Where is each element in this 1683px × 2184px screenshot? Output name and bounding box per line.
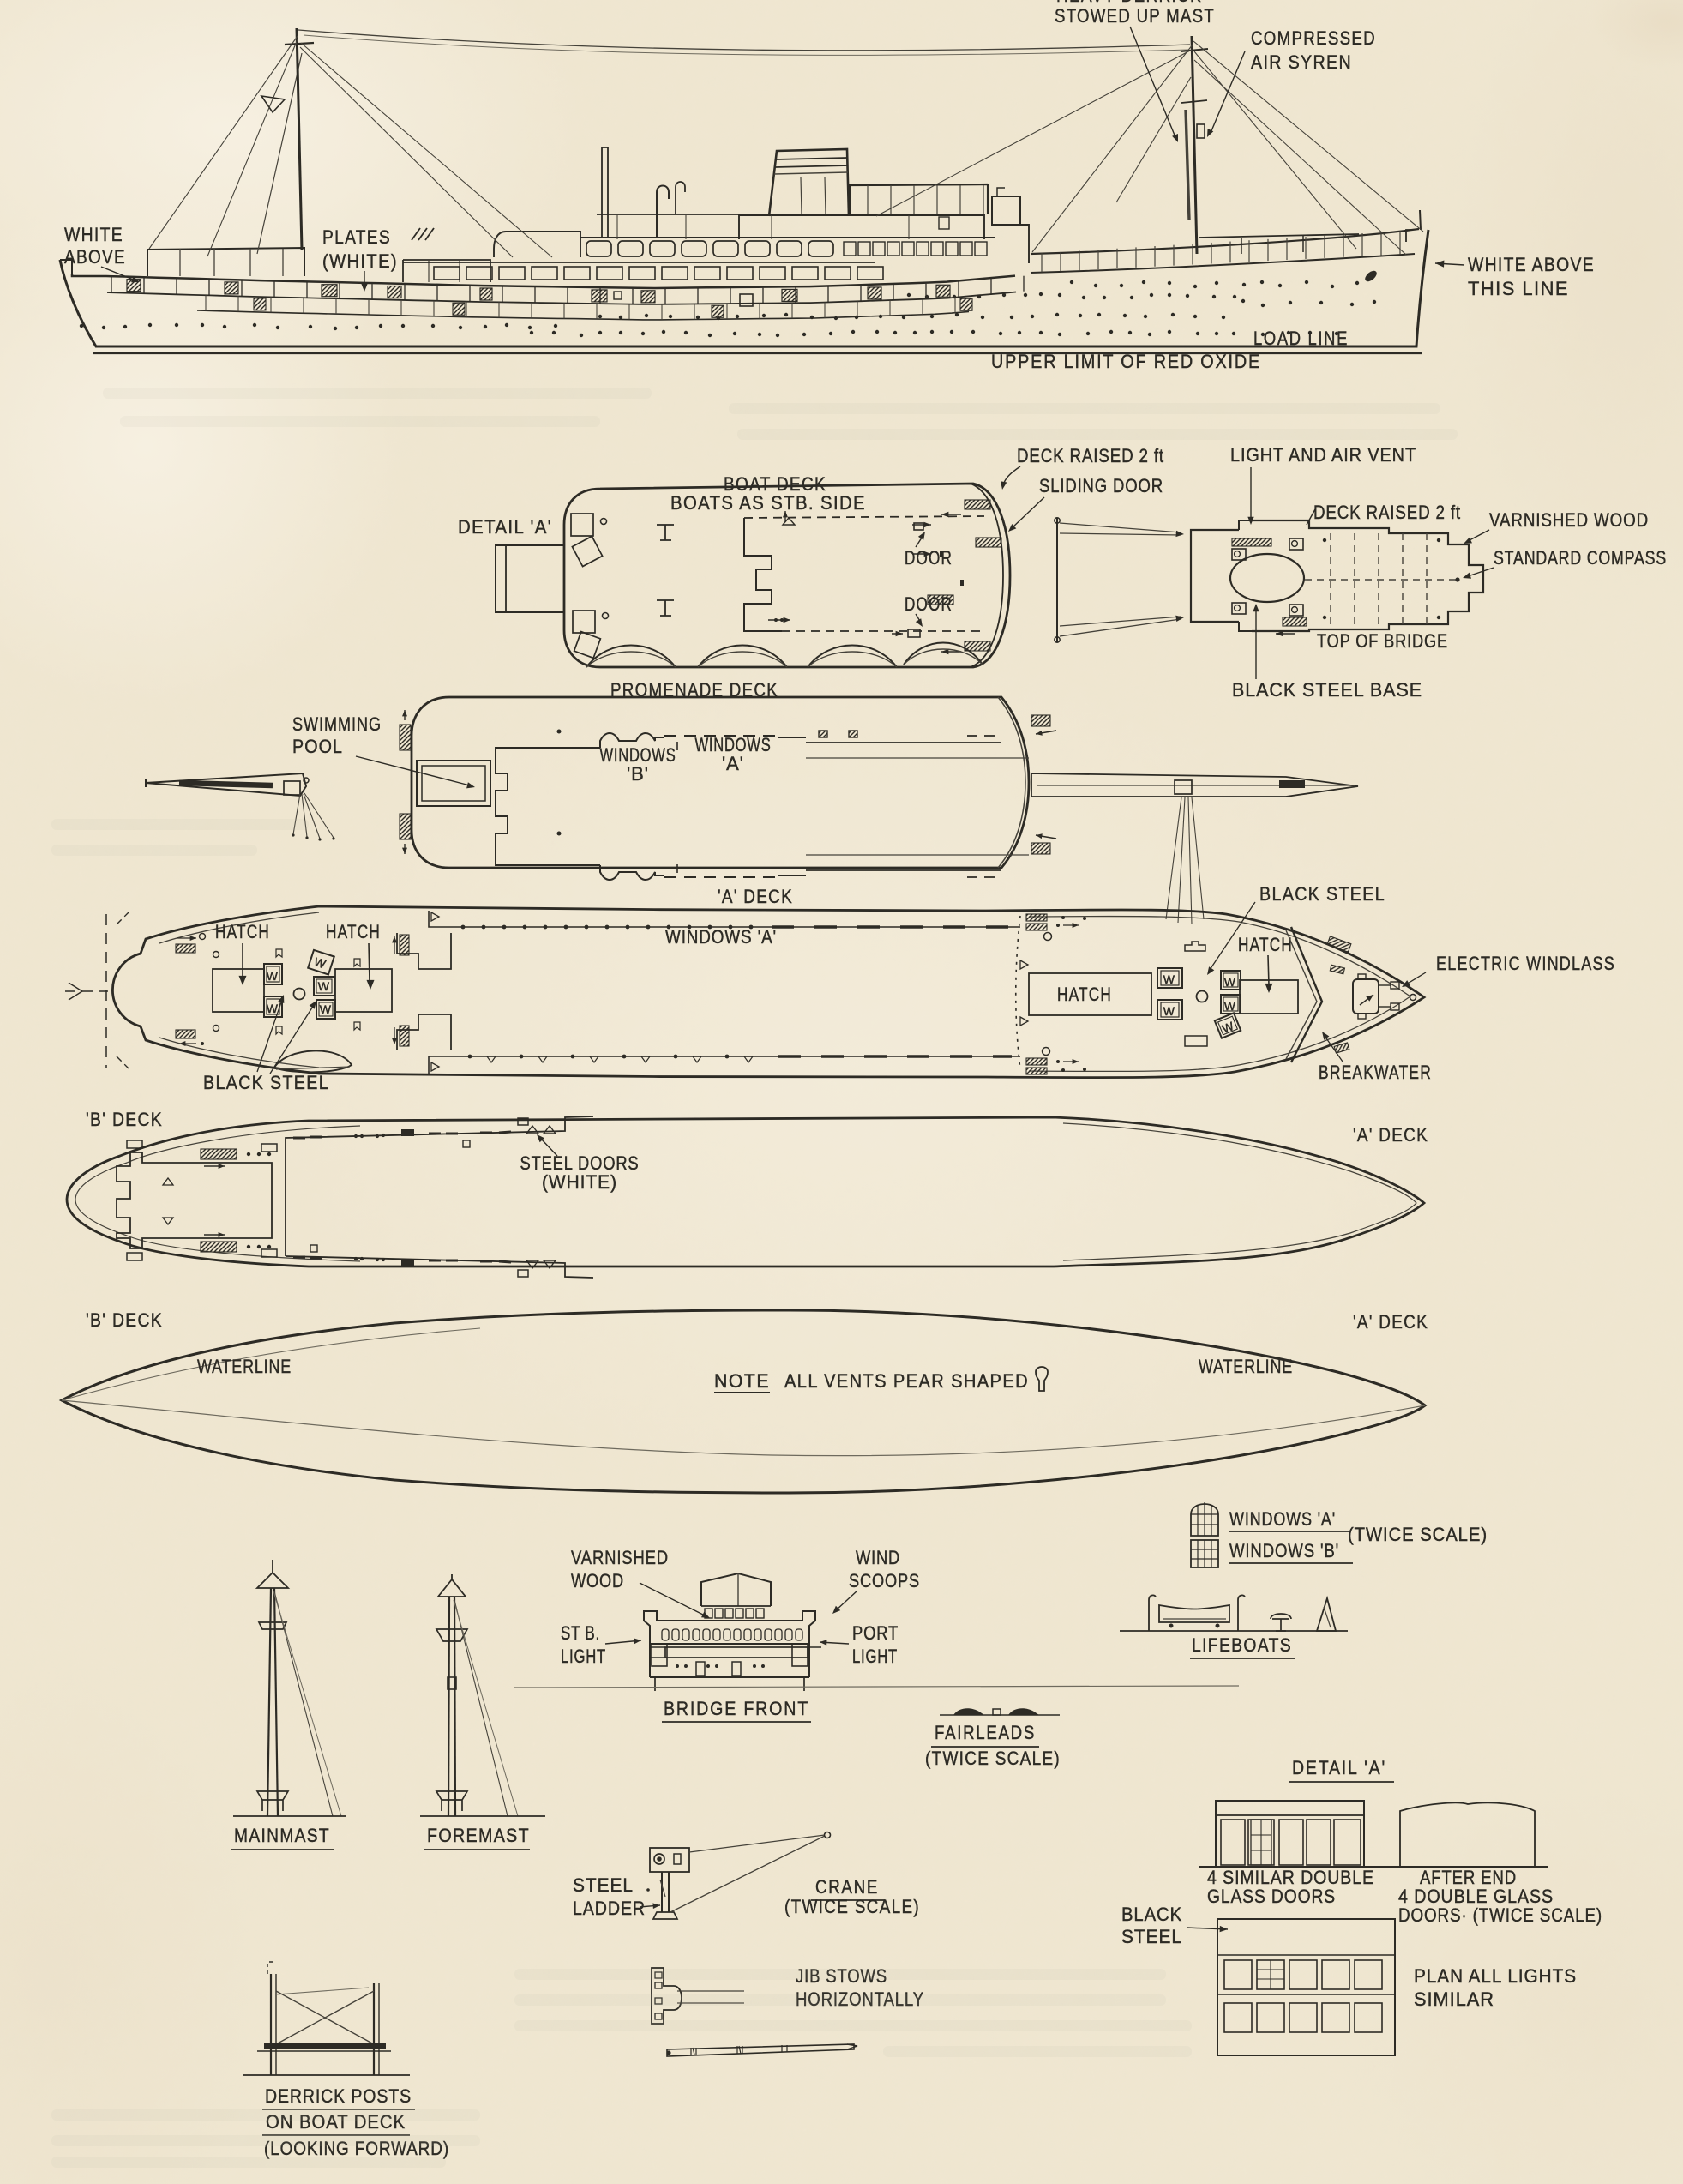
svg-text:LIGHT AND AIR VENT: LIGHT AND AIR VENT xyxy=(1230,444,1416,466)
svg-text:THIS LINE: THIS LINE xyxy=(1468,278,1569,299)
svg-text:WATERLINE: WATERLINE xyxy=(197,1356,292,1377)
svg-text:BLACK STEEL: BLACK STEEL xyxy=(1259,883,1385,905)
svg-text:ALL VENTS PEAR SHAPED: ALL VENTS PEAR SHAPED xyxy=(784,1370,1029,1392)
svg-text:SLIDING DOOR: SLIDING DOOR xyxy=(1039,475,1163,496)
svg-text:STEEL: STEEL xyxy=(1121,1926,1182,1947)
svg-text:W: W xyxy=(1224,999,1236,1013)
svg-text:LIGHT: LIGHT xyxy=(852,1646,898,1667)
svg-text:'B': 'B' xyxy=(627,763,649,785)
svg-text:PLAN ALL LIGHTS: PLAN ALL LIGHTS xyxy=(1414,1965,1577,1987)
svg-text:BLACK: BLACK xyxy=(1121,1904,1182,1925)
svg-text:WIND: WIND xyxy=(856,1547,900,1568)
svg-text:BRIDGE FRONT: BRIDGE FRONT xyxy=(664,1698,809,1719)
svg-text:LOAD LINE: LOAD LINE xyxy=(1253,328,1349,349)
svg-text:AIR SYREN: AIR SYREN xyxy=(1251,51,1352,73)
svg-text:FAIRLEADS: FAIRLEADS xyxy=(935,1722,1036,1743)
svg-text:W: W xyxy=(1163,972,1175,986)
svg-text:BOATS AS STB. SIDE: BOATS AS STB. SIDE xyxy=(670,492,866,514)
svg-text:HATCH: HATCH xyxy=(1238,934,1293,955)
svg-text:W: W xyxy=(318,979,330,993)
svg-text:VARNISHED WOOD: VARNISHED WOOD xyxy=(1489,509,1649,531)
svg-text:COMPRESSED: COMPRESSED xyxy=(1251,27,1376,49)
svg-text:DOORS· (TWICE SCALE): DOORS· (TWICE SCALE) xyxy=(1398,1904,1602,1926)
svg-text:'A': 'A' xyxy=(722,753,744,774)
svg-text:(WHITE): (WHITE) xyxy=(542,1171,617,1193)
svg-text:WHITE ABOVE: WHITE ABOVE xyxy=(1468,254,1595,275)
svg-text:UPPER LIMIT OF RED OXIDE: UPPER LIMIT OF RED OXIDE xyxy=(991,351,1261,372)
svg-text:'A' DECK: 'A' DECK xyxy=(1353,1124,1428,1146)
svg-text:TOP OF BRIDGE: TOP OF BRIDGE xyxy=(1317,630,1448,652)
svg-text:HATCH: HATCH xyxy=(326,921,381,942)
svg-text:MAINMAST: MAINMAST xyxy=(234,1825,330,1846)
svg-text:PLATES: PLATES xyxy=(322,226,391,248)
svg-text:GLASS DOORS: GLASS DOORS xyxy=(1207,1886,1336,1907)
svg-text:W: W xyxy=(1163,1004,1175,1018)
svg-text:LIGHT: LIGHT xyxy=(561,1646,606,1667)
svg-text:(TWICE SCALE): (TWICE SCALE) xyxy=(1348,1524,1488,1545)
svg-text:LADDER: LADDER xyxy=(573,1898,646,1919)
svg-text:DETAIL 'A': DETAIL 'A' xyxy=(458,516,552,538)
svg-text:FOREMAST: FOREMAST xyxy=(427,1825,530,1846)
svg-text:BLACK STEEL: BLACK STEEL xyxy=(203,1072,329,1093)
svg-text:WATERLINE: WATERLINE xyxy=(1199,1356,1293,1377)
svg-text:DOOR: DOOR xyxy=(905,547,953,569)
svg-text:SWIMMING: SWIMMING xyxy=(292,713,382,735)
svg-text:'B' DECK: 'B' DECK xyxy=(86,1109,163,1130)
svg-text:SIMILAR: SIMILAR xyxy=(1414,1988,1494,2010)
svg-text:ABOVE: ABOVE xyxy=(64,246,126,268)
svg-text:BREAKWATER: BREAKWATER xyxy=(1319,1062,1432,1083)
svg-text:'A' DECK: 'A' DECK xyxy=(1353,1311,1428,1333)
svg-text:STANDARD COMPASS: STANDARD COMPASS xyxy=(1494,547,1667,569)
svg-text:POOL: POOL xyxy=(292,736,343,757)
svg-text:SCOOPS: SCOOPS xyxy=(849,1570,920,1591)
svg-text:DECK RAISED 2 ft: DECK RAISED 2 ft xyxy=(1313,502,1461,523)
svg-text:W: W xyxy=(267,969,279,983)
svg-text:'B' DECK: 'B' DECK xyxy=(86,1309,163,1331)
svg-text:HATCH: HATCH xyxy=(215,921,270,942)
svg-text:'A' DECK: 'A' DECK xyxy=(718,886,793,907)
svg-text:CRANE: CRANE xyxy=(815,1876,879,1898)
svg-text:LIFEBOATS: LIFEBOATS xyxy=(1192,1634,1292,1656)
svg-text:WHITE: WHITE xyxy=(64,224,123,245)
svg-text:(WHITE): (WHITE) xyxy=(322,250,398,272)
svg-text:HATCH: HATCH xyxy=(1057,984,1112,1005)
svg-text:W: W xyxy=(320,1002,332,1016)
svg-text:(TWICE SCALE): (TWICE SCALE) xyxy=(784,1896,920,1917)
svg-text:ST B.: ST B. xyxy=(561,1622,600,1644)
svg-text:DECK RAISED 2 ft: DECK RAISED 2 ft xyxy=(1017,445,1164,466)
svg-text:DETAIL 'A': DETAIL 'A' xyxy=(1292,1757,1386,1778)
svg-text:DOOR: DOOR xyxy=(905,593,953,615)
svg-text:DERRICK POSTS: DERRICK POSTS xyxy=(265,2085,412,2107)
svg-text:STEEL: STEEL xyxy=(573,1874,634,1896)
svg-text:PORT: PORT xyxy=(852,1622,899,1644)
svg-text:WINDOWS 'B': WINDOWS 'B' xyxy=(1229,1540,1339,1561)
svg-text:BLACK STEEL BASE: BLACK STEEL BASE xyxy=(1232,679,1422,701)
svg-text:WOOD: WOOD xyxy=(571,1570,624,1591)
svg-text:ELECTRIC WINDLASS: ELECTRIC WINDLASS xyxy=(1436,953,1615,974)
svg-text:W: W xyxy=(1224,975,1236,989)
svg-text:NOTE: NOTE xyxy=(714,1370,770,1392)
svg-text:(TWICE SCALE): (TWICE SCALE) xyxy=(925,1748,1061,1769)
svg-text:STOWED UP MAST: STOWED UP MAST xyxy=(1055,5,1215,27)
svg-text:WINDOWS 'A': WINDOWS 'A' xyxy=(1229,1508,1336,1530)
svg-text:WINDOWS 'A': WINDOWS 'A' xyxy=(665,926,777,948)
svg-text:VARNISHED: VARNISHED xyxy=(571,1547,669,1568)
